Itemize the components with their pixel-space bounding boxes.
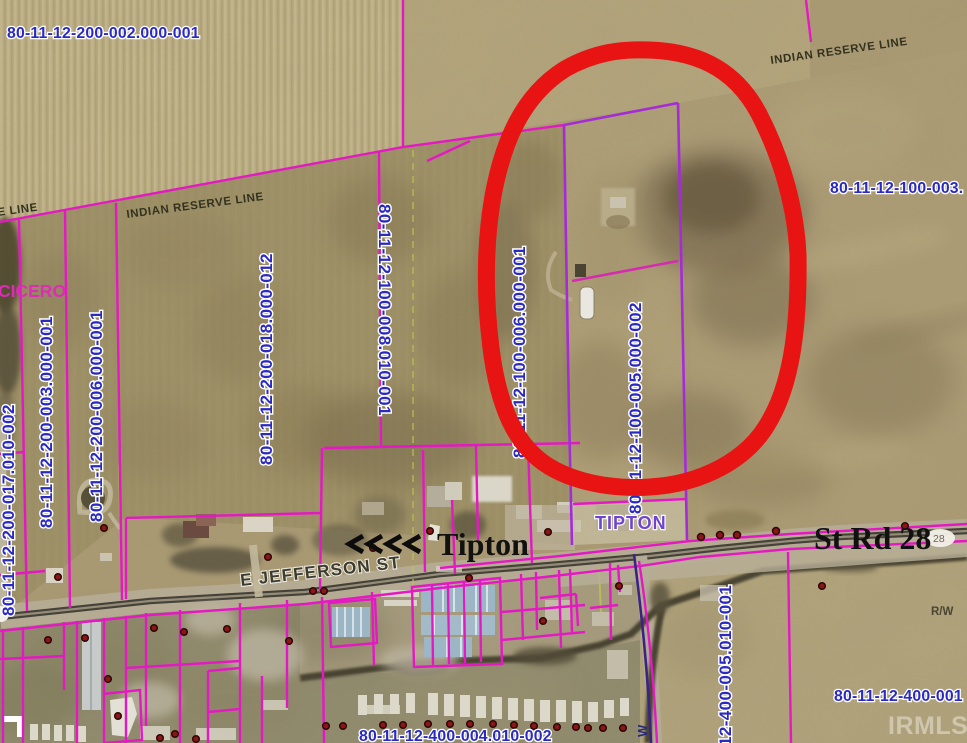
svg-text:80-11-12-200-003.000-001: 80-11-12-200-003.000-001 xyxy=(37,316,56,528)
svg-text:80-11-12-200-017.010-002: 80-11-12-200-017.010-002 xyxy=(0,404,18,616)
svg-text:R/W: R/W xyxy=(931,606,954,618)
svg-text:W: W xyxy=(635,724,650,737)
svg-text:80-11-12-200-018.000-012: 80-11-12-200-018.000-012 xyxy=(257,253,276,465)
svg-text:IRMLS: IRMLS xyxy=(888,712,967,740)
svg-text:80-11-12-100-003.: 80-11-12-100-003. xyxy=(830,180,963,197)
svg-text:80-11-12-400-001: 80-11-12-400-001 xyxy=(834,688,963,705)
svg-text:80-11-12-200-002.000-001: 80-11-12-200-002.000-001 xyxy=(7,25,200,42)
svg-text:CICERO: CICERO xyxy=(0,281,66,301)
svg-text:St Rd 28: St Rd 28 xyxy=(814,520,931,556)
svg-text:80-11-12-200-006.000-001: 80-11-12-200-006.000-001 xyxy=(87,310,106,522)
svg-text:TIPTON: TIPTON xyxy=(595,513,667,533)
svg-text:Tipton: Tipton xyxy=(437,526,529,562)
svg-text:12-400-005.010-001: 12-400-005.010-001 xyxy=(716,585,735,743)
svg-text:80-11-12-400-004.010-002: 80-11-12-400-004.010-002 xyxy=(359,728,552,743)
svg-text:80-11-12-100-008.010-001: 80-11-12-100-008.010-001 xyxy=(375,204,394,416)
svg-text:28: 28 xyxy=(933,533,945,545)
